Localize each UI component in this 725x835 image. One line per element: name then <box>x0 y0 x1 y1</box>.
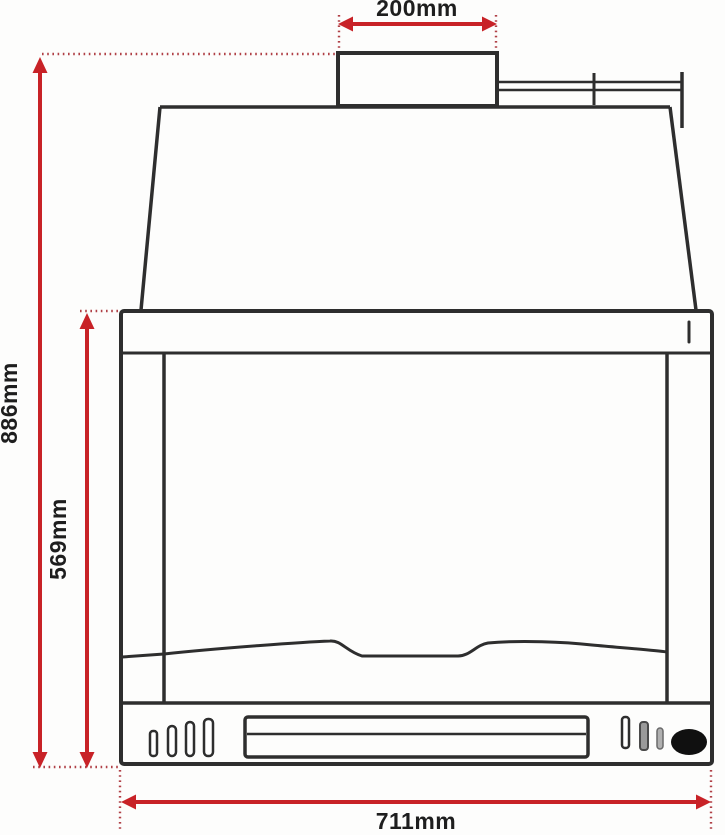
arrowhead-down <box>33 752 48 768</box>
dimension-overall-width: 711mm <box>120 770 711 834</box>
vent-slots-left <box>150 719 213 756</box>
fire-bed-line <box>122 641 667 657</box>
vent-slots-right <box>622 717 663 750</box>
body-outline <box>121 311 712 764</box>
dimension-label: 200mm <box>376 0 458 21</box>
ash-drawer <box>245 717 588 757</box>
firebox-frame <box>164 354 667 702</box>
arrowhead-down <box>80 752 95 768</box>
vent-slot <box>657 728 663 749</box>
flue-duct <box>338 53 497 106</box>
fireplace-technical-drawing: 200mm 886mm 569mm 711mm <box>0 0 725 835</box>
arrowhead-up <box>80 313 95 329</box>
hood-left-slope <box>141 107 160 310</box>
vent-slot <box>150 731 157 756</box>
dimension-body-height: 569mm <box>45 311 118 768</box>
hood-right-slope <box>670 107 696 310</box>
vent-slot <box>640 722 648 750</box>
ash-drawer-front <box>245 717 588 757</box>
arrowhead-left <box>338 17 353 32</box>
vent-slot <box>204 719 213 756</box>
arrowhead-left <box>121 795 136 810</box>
technical-drawing-canvas: 200mm 886mm 569mm 711mm <box>0 0 725 835</box>
bottom-panel <box>121 703 712 757</box>
arrowhead-up <box>33 57 48 73</box>
vent-slot <box>622 717 629 748</box>
stove-outline <box>121 53 712 764</box>
dimension-flue-width: 200mm <box>338 0 497 49</box>
air-control-knob <box>671 729 707 755</box>
damper-rod <box>497 72 682 128</box>
arrowhead-right <box>482 17 497 32</box>
arrowhead-right <box>696 795 711 810</box>
hood <box>141 107 696 310</box>
dimension-overall-height: 886mm <box>0 54 337 768</box>
dimension-label: 711mm <box>376 808 457 834</box>
dimension-label: 569mm <box>45 498 71 580</box>
dimension-label: 886mm <box>0 362 22 444</box>
vent-slot <box>186 722 194 756</box>
vent-slot <box>168 726 176 756</box>
